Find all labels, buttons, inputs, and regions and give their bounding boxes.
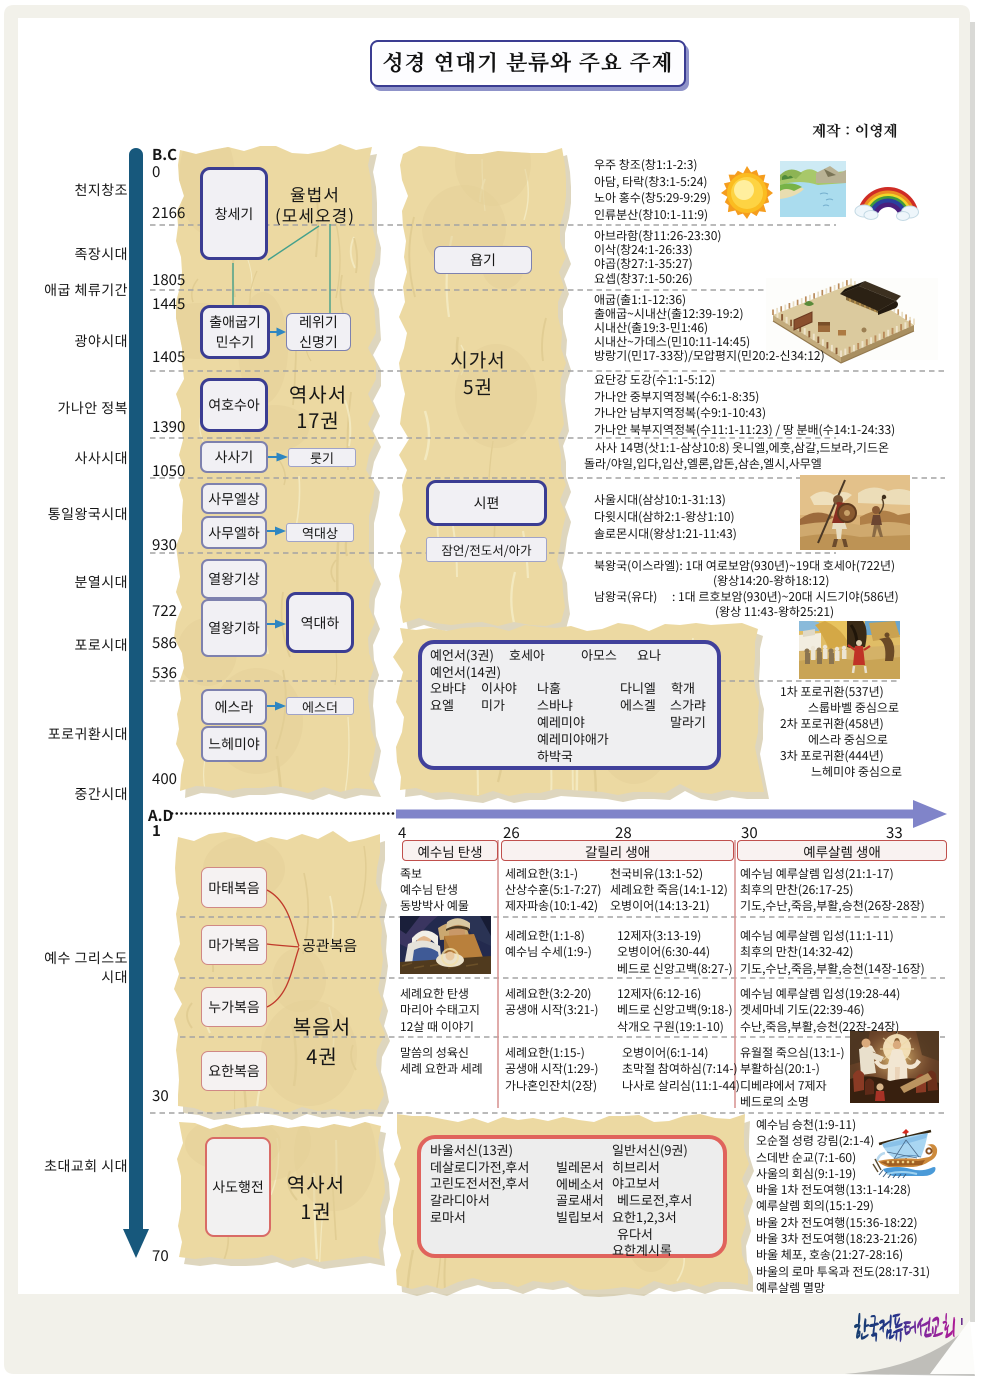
- svg-text:한국컴퓨터선교회: 한국컴퓨터선교회: [853, 1312, 956, 1347]
